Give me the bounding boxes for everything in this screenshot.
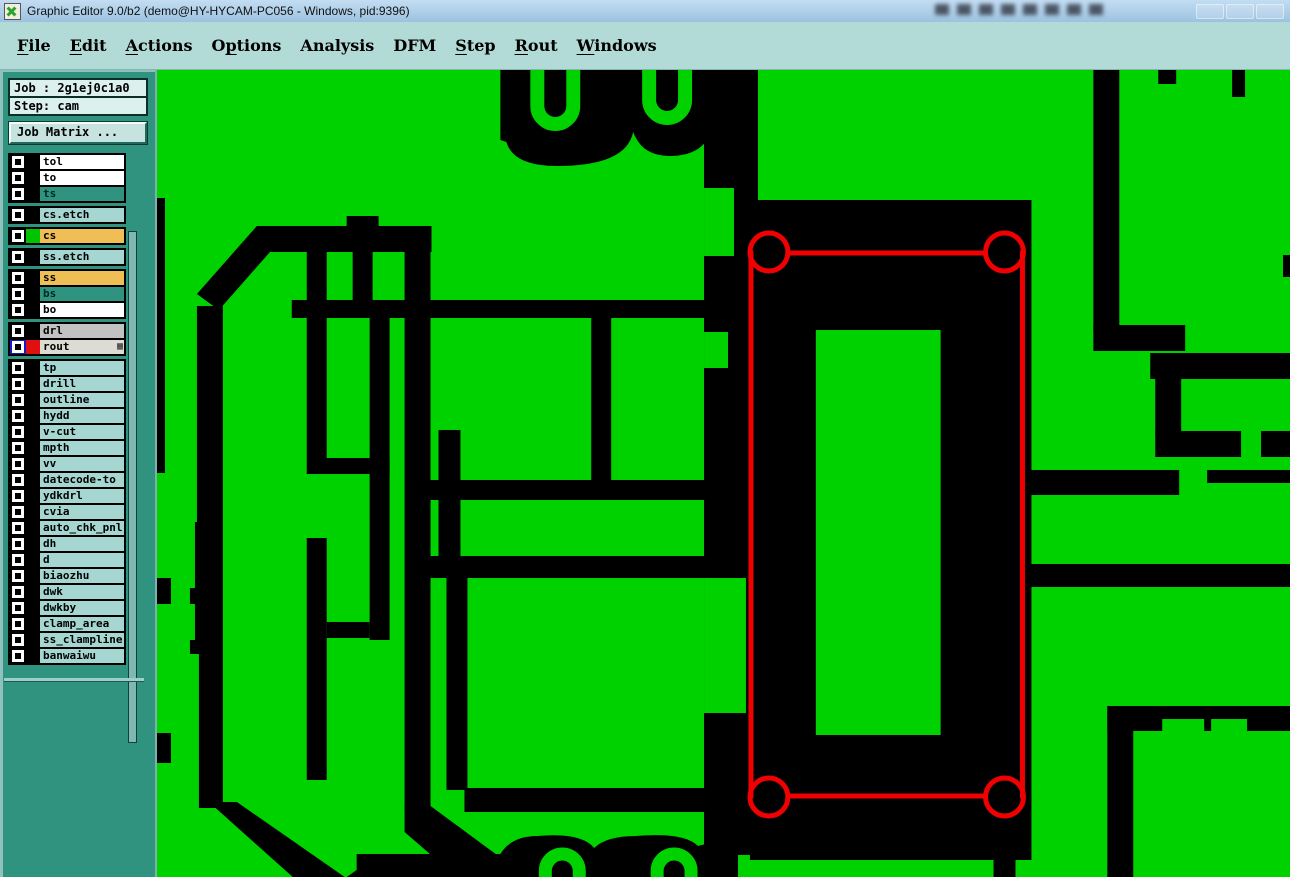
layer-name[interactable]: drl: [40, 324, 124, 338]
layer-checkbox[interactable]: [10, 271, 26, 285]
layer-row-ydkdrl[interactable]: ydkdrl: [10, 487, 124, 503]
layer-row-datecode-to[interactable]: datecode-to: [10, 471, 124, 487]
maximize-button[interactable]: [1226, 4, 1254, 19]
layer-color-swatch[interactable]: [26, 489, 40, 503]
layer-name[interactable]: dwkby: [40, 601, 124, 615]
layer-checkbox[interactable]: [10, 521, 26, 535]
layer-color-swatch[interactable]: [26, 457, 40, 471]
checkbox-square-icon: [12, 570, 24, 582]
pcb-canvas[interactable]: [155, 70, 1290, 877]
layer-name[interactable]: ydkdrl: [40, 489, 124, 503]
layer-color-swatch[interactable]: [26, 271, 40, 285]
matrix-grid-icon[interactable]: ▦: [117, 341, 123, 353]
menu-bar: FileEditActionsOptionsAnalysisDFMStepRou…: [0, 22, 1290, 70]
layer-checkbox[interactable]: [10, 340, 26, 354]
layer-row-dwkby[interactable]: dwkby: [10, 599, 124, 615]
layer-color-swatch[interactable]: [26, 229, 40, 243]
layer-color-swatch[interactable]: [26, 324, 40, 338]
layer-row-dh[interactable]: dh: [10, 535, 124, 551]
layer-checkbox[interactable]: [10, 537, 26, 551]
layer-color-swatch[interactable]: [26, 553, 40, 567]
layer-name[interactable]: tol: [40, 155, 124, 169]
layer-row-auto_chk_pnl[interactable]: auto_chk_pnl: [10, 519, 124, 535]
layer-color-swatch[interactable]: [26, 649, 40, 663]
checkbox-square-icon: [12, 474, 24, 486]
layer-row-vv[interactable]: vv: [10, 455, 124, 471]
layer-row-bo[interactable]: bo: [10, 301, 124, 317]
checkbox-square-icon: [12, 188, 24, 200]
layer-checkbox[interactable]: [10, 187, 26, 201]
layer-color-swatch[interactable]: [26, 287, 40, 301]
job-label: Job : 2g1ej0c1a0: [8, 78, 148, 98]
layer-color-swatch[interactable]: [26, 617, 40, 631]
layer-row-cvia[interactable]: cvia: [10, 503, 124, 519]
layer-row-cs.etch[interactable]: cs.etch: [10, 208, 124, 222]
layer-row-cs[interactable]: cs: [10, 229, 124, 243]
layer-color-swatch[interactable]: [26, 187, 40, 201]
layer-color-swatch[interactable]: [26, 521, 40, 535]
checkbox-square-icon: [12, 209, 24, 221]
layer-checkbox[interactable]: [10, 303, 26, 317]
checkbox-square-icon: [12, 586, 24, 598]
inner-copper-bar: [816, 330, 941, 735]
layer-checkbox[interactable]: [10, 553, 26, 567]
layer-name[interactable]: datecode-to: [40, 473, 124, 487]
close-button[interactable]: [1256, 4, 1284, 19]
checkbox-square-icon: [12, 410, 24, 422]
layer-row-v-cut[interactable]: v-cut: [10, 423, 124, 439]
layer-group: ss.etch: [8, 248, 126, 266]
layer-checkbox[interactable]: [10, 489, 26, 503]
layer-name[interactable]: biaozhu: [40, 569, 124, 583]
rout-outline[interactable]: [750, 200, 1032, 877]
window-controls[interactable]: [1196, 4, 1284, 19]
layer-color-swatch[interactable]: [26, 208, 40, 222]
layer-color-swatch[interactable]: [26, 250, 40, 264]
layer-color-swatch[interactable]: [26, 537, 40, 551]
layer-row-ts[interactable]: ts: [10, 185, 124, 201]
checkbox-square-icon: [12, 506, 24, 518]
layer-checkbox[interactable]: [10, 287, 26, 301]
layer-checkbox[interactable]: [10, 324, 26, 338]
layer-row-clamp_area[interactable]: clamp_area: [10, 615, 124, 631]
checkbox-square-icon: [12, 172, 24, 184]
menu-file[interactable]: File: [17, 36, 51, 55]
layer-group: tpdrilloutlinehyddv-cutmpthvvdatecode-to…: [8, 359, 126, 665]
application-window: Graphic Editor 9.0/b2 (demo@HY-HYCAM-PC0…: [0, 0, 1290, 877]
layer-checkbox[interactable]: [10, 457, 26, 471]
layer-row-hydd[interactable]: hydd: [10, 407, 124, 423]
layer-name[interactable]: clamp_area: [40, 617, 124, 631]
layer-checkbox[interactable]: [10, 250, 26, 264]
layer-checkbox[interactable]: [10, 393, 26, 407]
menu-options[interactable]: Options: [212, 36, 282, 55]
layer-row-drill[interactable]: drill: [10, 375, 124, 391]
layer-row-biaozhu[interactable]: biaozhu: [10, 567, 124, 583]
checkbox-square-icon: [12, 442, 24, 454]
window-title: Graphic Editor 9.0/b2 (demo@HY-HYCAM-PC0…: [27, 4, 410, 18]
layer-row-ss_clampline[interactable]: ss_clampline: [10, 631, 124, 647]
layer-group: cs.etch: [8, 206, 126, 224]
layer-name[interactable]: ss_clampline: [40, 633, 124, 647]
layer-checkbox[interactable]: [10, 425, 26, 439]
layer-row-tp[interactable]: tp: [10, 361, 124, 375]
layer-name[interactable]: vv: [40, 457, 124, 471]
layer-color-swatch[interactable]: [26, 441, 40, 455]
layer-color-swatch[interactable]: [26, 601, 40, 615]
layer-checkbox[interactable]: [10, 617, 26, 631]
layer-row-banwaiwu[interactable]: banwaiwu: [10, 647, 124, 663]
layer-color-swatch[interactable]: [26, 585, 40, 599]
layer-name[interactable]: dh: [40, 537, 124, 551]
layer-color-swatch[interactable]: [26, 361, 40, 375]
checkbox-square-icon: [12, 538, 24, 550]
layer-checkbox[interactable]: [10, 377, 26, 391]
layer-name[interactable]: outline: [40, 393, 124, 407]
layer-color-swatch[interactable]: [26, 377, 40, 391]
checkbox-square-icon: [12, 341, 24, 353]
layer-color-swatch[interactable]: [26, 393, 40, 407]
menu-dfm[interactable]: DFM: [393, 36, 436, 55]
layer-row-d[interactable]: d: [10, 551, 124, 567]
checkbox-square-icon: [12, 251, 24, 263]
menu-analysis[interactable]: Analysis: [300, 36, 374, 55]
menu-edit[interactable]: Edit: [70, 36, 107, 55]
layer-name[interactable]: hydd: [40, 409, 124, 423]
checkbox-square-icon: [12, 230, 24, 242]
layer-checkbox[interactable]: [10, 229, 26, 243]
layer-row-outline[interactable]: outline: [10, 391, 124, 407]
layer-checkbox[interactable]: [10, 171, 26, 185]
layer-name[interactable]: rout▦: [40, 340, 124, 354]
checkbox-square-icon: [12, 618, 24, 630]
checkbox-square-icon: [12, 554, 24, 566]
layer-checkbox[interactable]: [10, 208, 26, 222]
layer-checkbox[interactable]: [10, 601, 26, 615]
checkbox-square-icon: [12, 362, 24, 374]
layer-name[interactable]: ts: [40, 187, 124, 201]
layer-name[interactable]: d: [40, 553, 124, 567]
checkbox-square-icon: [12, 288, 24, 300]
layer-name[interactable]: auto_chk_pnl: [40, 521, 124, 535]
layer-name[interactable]: bo: [40, 303, 124, 317]
layer-row-mpth[interactable]: mpth: [10, 439, 124, 455]
layer-name[interactable]: to: [40, 171, 124, 185]
layer-list: toltotscs.etchcsss.etchssbsbodrlrout▦tpd…: [8, 153, 126, 665]
checkbox-square-icon: [12, 378, 24, 390]
layer-row-ss[interactable]: ss: [10, 271, 124, 285]
layer-name[interactable]: banwaiwu: [40, 649, 124, 663]
layer-name[interactable]: ss.etch: [40, 250, 124, 264]
layer-name[interactable]: dwk: [40, 585, 124, 599]
layer-color-swatch[interactable]: [26, 155, 40, 169]
checkbox-square-icon: [12, 325, 24, 337]
layer-color-swatch[interactable]: [26, 171, 40, 185]
checkbox-square-icon: [12, 304, 24, 316]
layer-color-swatch[interactable]: [26, 633, 40, 647]
title-bar[interactable]: Graphic Editor 9.0/b2 (demo@HY-HYCAM-PC0…: [0, 0, 1290, 23]
layer-group: ssbsbo: [8, 269, 126, 319]
checkbox-square-icon: [12, 634, 24, 646]
job-matrix-button[interactable]: Job Matrix ...: [9, 122, 147, 144]
copper-layer-view: [157, 70, 1290, 877]
layer-checkbox[interactable]: [10, 155, 26, 169]
sidebar-panel: Job : 2g1ej0c1a0 Step: cam Job Matrix ..…: [0, 70, 155, 877]
checkbox-square-icon: [12, 458, 24, 470]
checkbox-square-icon: [12, 394, 24, 406]
layer-checkbox[interactable]: [10, 633, 26, 647]
layer-name[interactable]: cs.etch: [40, 208, 124, 222]
layer-name[interactable]: bs: [40, 287, 124, 301]
layer-name[interactable]: v-cut: [40, 425, 124, 439]
minimize-button[interactable]: [1196, 4, 1224, 19]
layer-name[interactable]: mpth: [40, 441, 124, 455]
menu-step[interactable]: Step: [455, 36, 495, 55]
layer-name[interactable]: cs: [40, 229, 124, 243]
layer-checkbox[interactable]: [10, 361, 26, 375]
checkbox-square-icon: [12, 522, 24, 534]
layer-list-footer-ridge: [4, 678, 144, 682]
titlebar-smudge: [935, 4, 1105, 15]
layer-color-swatch[interactable]: [26, 303, 40, 317]
layer-row-tol[interactable]: tol: [10, 155, 124, 169]
layer-checkbox[interactable]: [10, 585, 26, 599]
layer-checkbox[interactable]: [10, 473, 26, 487]
layer-row-to[interactable]: to: [10, 169, 124, 185]
layer-name[interactable]: drill: [40, 377, 124, 391]
checkbox-square-icon: [12, 426, 24, 438]
checkbox-square-icon: [12, 272, 24, 284]
app-icon: [4, 3, 21, 20]
layer-name[interactable]: cvia: [40, 505, 124, 519]
menu-windows[interactable]: Windows: [577, 36, 657, 55]
layer-list-scrollbar[interactable]: [128, 231, 137, 743]
layer-group: cs: [8, 227, 126, 245]
layer-group: drlrout▦: [8, 322, 126, 356]
layer-checkbox[interactable]: [10, 649, 26, 663]
layer-group: toltots: [8, 153, 126, 203]
layer-color-swatch[interactable]: [26, 505, 40, 519]
menu-actions[interactable]: Actions: [126, 36, 193, 55]
layer-color-swatch[interactable]: [26, 340, 40, 354]
step-label: Step: cam: [8, 96, 148, 116]
checkbox-square-icon: [12, 156, 24, 168]
layer-color-swatch[interactable]: [26, 473, 40, 487]
menu-rout[interactable]: Rout: [515, 36, 558, 55]
layer-name[interactable]: tp: [40, 361, 124, 375]
layer-row-bs[interactable]: bs: [10, 285, 124, 301]
layer-row-dwk[interactable]: dwk: [10, 583, 124, 599]
checkbox-square-icon: [12, 490, 24, 502]
layer-color-swatch[interactable]: [26, 425, 40, 439]
layer-color-swatch[interactable]: [26, 409, 40, 423]
layer-checkbox[interactable]: [10, 569, 26, 583]
layer-row-ss.etch[interactable]: ss.etch: [10, 250, 124, 264]
checkbox-square-icon: [12, 602, 24, 614]
layer-checkbox[interactable]: [10, 409, 26, 423]
layer-row-drl[interactable]: drl: [10, 324, 124, 338]
layer-row-rout[interactable]: rout▦: [10, 338, 124, 354]
layer-name[interactable]: ss: [40, 271, 124, 285]
layer-checkbox[interactable]: [10, 505, 26, 519]
layer-color-swatch[interactable]: [26, 569, 40, 583]
layer-checkbox[interactable]: [10, 441, 26, 455]
checkbox-square-icon: [12, 650, 24, 662]
